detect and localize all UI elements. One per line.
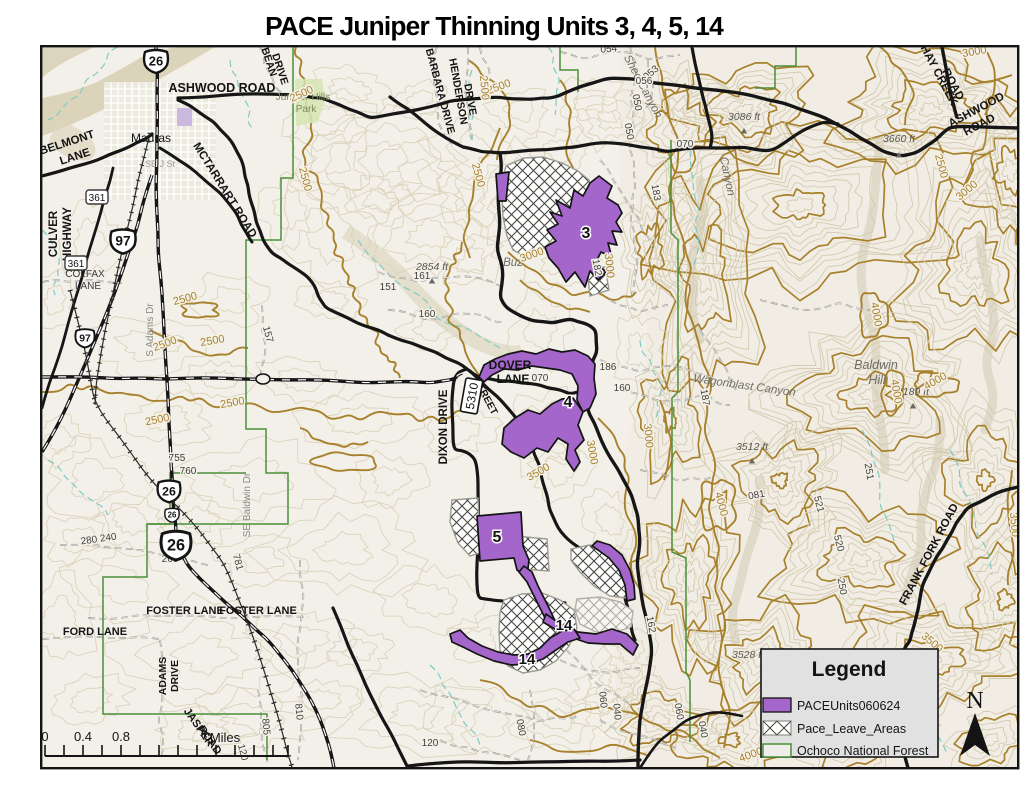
svg-text:3528 ft: 3528 ft — [732, 649, 765, 661]
svg-text:Baldwin: Baldwin — [854, 358, 898, 372]
svg-text:LANE: LANE — [497, 372, 530, 386]
svg-text:056: 056 — [636, 76, 653, 87]
svg-text:361: 361 — [89, 193, 106, 204]
svg-text:3: 3 — [582, 225, 591, 242]
svg-text:Ochoco National Forest: Ochoco National Forest — [797, 744, 929, 758]
svg-text:Madras: Madras — [131, 131, 171, 145]
svg-text:161: 161 — [414, 271, 431, 282]
svg-text:FORD LANE: FORD LANE — [63, 626, 127, 638]
svg-text:26: 26 — [162, 484, 176, 498]
svg-text:26: 26 — [149, 54, 163, 69]
svg-text:Miles: Miles — [210, 730, 241, 745]
svg-text:070: 070 — [532, 373, 549, 384]
svg-text:HIGHWAY: HIGHWAY — [62, 207, 74, 261]
svg-text:Legend: Legend — [812, 658, 887, 681]
svg-text:Pace_Leave_Areas: Pace_Leave_Areas — [797, 722, 906, 736]
svg-text:LANE: LANE — [75, 281, 101, 292]
svg-text:3512 ft: 3512 ft — [736, 441, 769, 453]
svg-text:060: 060 — [596, 691, 608, 709]
svg-text:14: 14 — [556, 617, 573, 634]
svg-text:14: 14 — [519, 651, 536, 668]
svg-text:160: 160 — [614, 383, 631, 394]
svg-text:CULVER: CULVER — [48, 210, 60, 257]
svg-text:0.4: 0.4 — [74, 729, 92, 744]
svg-text:5: 5 — [493, 529, 502, 546]
svg-text:Hill: Hill — [868, 373, 887, 387]
svg-text:755: 755 — [169, 453, 186, 464]
svg-text:810: 810 — [292, 703, 304, 721]
svg-text:PACEUnits060624: PACEUnits060624 — [797, 699, 900, 713]
svg-text:151: 151 — [380, 282, 397, 293]
svg-text:DRIVE: DRIVE — [169, 660, 181, 692]
svg-text:4: 4 — [564, 394, 573, 411]
svg-text:97: 97 — [79, 334, 91, 345]
svg-text:186: 186 — [600, 362, 617, 373]
svg-text:160: 160 — [419, 309, 436, 320]
svg-text:361: 361 — [68, 259, 85, 270]
svg-text:ASHWOOD ROAD: ASHWOOD ROAD — [169, 81, 276, 95]
svg-text:26: 26 — [167, 537, 185, 555]
svg-text:SE Baldwin Dr: SE Baldwin Dr — [242, 472, 253, 537]
svg-text:070: 070 — [677, 139, 694, 150]
svg-text:040: 040 — [610, 703, 622, 721]
svg-text:3086 ft: 3086 ft — [728, 111, 761, 123]
svg-text:3000: 3000 — [641, 423, 655, 448]
svg-text:97: 97 — [115, 234, 130, 249]
svg-text:FOSTER LANE: FOSTER LANE — [219, 605, 297, 617]
svg-text:N: N — [966, 688, 983, 714]
svg-text:Park: Park — [296, 104, 318, 115]
svg-text:120: 120 — [422, 738, 439, 749]
svg-text:0.8: 0.8 — [112, 729, 130, 744]
svg-text:2500: 2500 — [477, 75, 491, 100]
svg-text:DIXON DRIVE: DIXON DRIVE — [438, 389, 450, 464]
svg-text:DOVER: DOVER — [489, 358, 532, 372]
svg-text:FOSTER LANE: FOSTER LANE — [146, 605, 224, 617]
svg-text:3660 ft: 3660 ft — [883, 133, 916, 145]
svg-text:0: 0 — [41, 729, 48, 744]
svg-text:ADAMS: ADAMS — [157, 657, 169, 696]
svg-text:805: 805 — [259, 718, 271, 736]
svg-text:SE J St: SE J St — [145, 159, 176, 169]
svg-text:760: 760 — [180, 466, 197, 477]
svg-text:26: 26 — [168, 511, 177, 520]
